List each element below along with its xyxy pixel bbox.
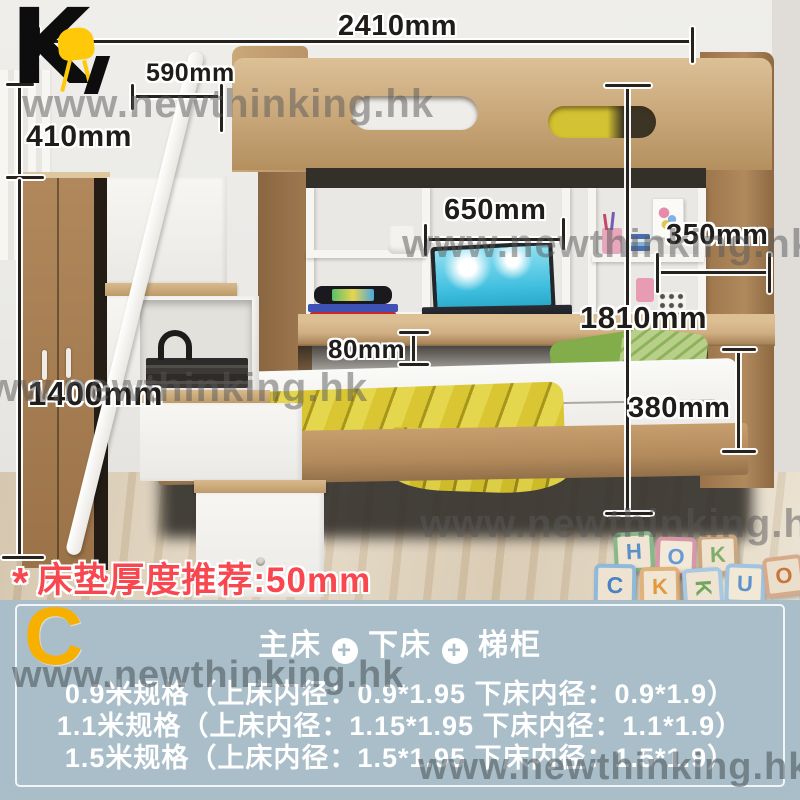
toy-block: K [682,567,725,600]
dim-overall-height: 1810mm [580,300,707,336]
dim-lower-bed-clearance: 380mm [628,392,730,425]
game-console [314,286,392,304]
product-dimension-diagram: HOKCKKUO 2410mm 590mm 410mm 1400mm 650mm… [0,0,800,800]
stair-tread [194,480,326,493]
yellow-chair-icon [52,26,104,94]
mattress-note-text: 床垫厚度推荐:50mm [37,561,371,600]
watermark: www.newthinking.hk [418,746,800,789]
asterisk-icon: * [12,559,29,606]
book [308,304,398,312]
dim-line-shelf-depth [658,271,770,274]
dim-tick [691,27,694,63]
dim-line-desk-thickness [412,333,415,365]
dim-total-width: 2410mm [338,10,457,43]
dim-cap [722,450,756,453]
dim-desk-thickness: 80mm [328,334,405,365]
plus-icon: + [442,638,468,664]
stair-tread [105,283,237,296]
chair-leg [60,60,72,92]
combo-part: 梯柜 [478,629,542,662]
upper-bunk-base [306,168,706,188]
pink-holder [636,278,654,302]
toy-block: U [724,563,765,600]
watermark: www.newthinking.hk [0,366,368,411]
dim-cap [722,348,756,351]
watermark: www.newthinking.hk [12,654,404,697]
watermark: www.newthinking.hk [420,502,800,547]
stair-cabinet-low [140,403,302,481]
toy-block: O [762,554,800,599]
brand-logo: K [6,0,116,100]
dim-line-lower-bed-clearance [737,350,740,452]
toy-block: C [594,564,637,600]
headphones [158,330,192,360]
watermark: www.newthinking.hk [402,222,800,267]
chair-shell [56,26,95,62]
toy-block: K [640,567,681,600]
mattress-note: *床垫厚度推荐:50mm [12,552,371,603]
dim-cap [605,84,651,87]
guardrail-handle-cutout [548,106,656,138]
dim-tick [6,176,44,179]
